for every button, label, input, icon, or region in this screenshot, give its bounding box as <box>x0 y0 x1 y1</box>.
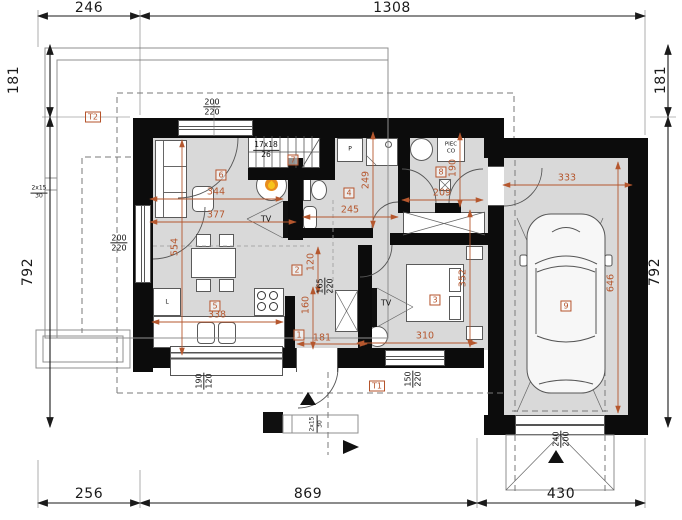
entrance-arrow <box>300 392 316 405</box>
dim-top-1308: 1308 <box>373 0 411 16</box>
dim-left-181: 181 <box>6 66 22 94</box>
front-window-size: 150220 <box>403 370 422 387</box>
dim-bottom-256: 256 <box>75 486 103 502</box>
balcony-door-size: 200220 <box>203 97 220 116</box>
dim-right-792: 792 <box>647 258 663 286</box>
dim-bath-245: 245 <box>341 205 359 216</box>
room-box-entry: 1 <box>293 323 304 342</box>
dim-entry-160: 160 <box>301 296 312 314</box>
dim-bottom-430: 430 <box>547 486 575 502</box>
section-marker-icon <box>343 440 359 454</box>
dim-garage-646: 646 <box>606 274 617 292</box>
dim-top-246: 246 <box>75 0 103 16</box>
room-box-garage: 9 <box>560 294 571 313</box>
room-box-terrace: T2 <box>85 105 101 124</box>
kitchen-window-size: 190120 <box>194 372 213 389</box>
room-box-living: 6 <box>215 163 226 182</box>
dim-living-344: 344 <box>207 187 225 198</box>
dim-hall-120: 120 <box>306 253 317 271</box>
room-box-boiler: 8 <box>435 160 446 179</box>
garage-door-size: 240200 <box>551 430 570 447</box>
dim-living-377: 377 <box>207 210 225 221</box>
dim-bottom-869: 869 <box>294 486 322 502</box>
dim-right-181: 181 <box>653 66 669 94</box>
dim-kitchen-338: 338 <box>208 310 226 321</box>
floor-plan: 246 1308 181 792 181 792 256 869 430 200… <box>0 0 682 520</box>
dim-entry-181: 181 <box>313 333 331 344</box>
room-box-stairs: 7 <box>287 148 298 167</box>
dim-bedroom-352: 352 <box>458 269 469 287</box>
dim-bath-249: 249 <box>361 171 372 189</box>
dim-bedroom-310: 310 <box>416 331 434 342</box>
stairs-spec: 17x1826 <box>253 141 279 159</box>
terrace-door-size: 200220 <box>110 233 127 252</box>
tv-label-bedroom: TV <box>381 299 391 308</box>
boiler-label: PIECCO <box>445 141 457 154</box>
room-box-bedroom: 3 <box>429 288 440 307</box>
dim-garage-333: 333 <box>558 173 576 184</box>
room-box-porch: T1 <box>369 374 385 393</box>
washer-label: P <box>348 146 352 153</box>
dim-boiler-190: 190 <box>448 159 459 177</box>
garage-entrance-arrow <box>548 450 564 463</box>
porch-steps-label: 2x1530 <box>310 415 325 432</box>
room-box-bath: 4 <box>343 181 354 200</box>
room-box-hall: 2 <box>291 258 302 277</box>
dim-living-554: 554 <box>170 238 181 256</box>
fridge-label: L <box>165 299 168 306</box>
door-swing-arcs <box>153 138 542 408</box>
dim-left-792: 792 <box>20 258 36 286</box>
dim-boiler-209: 209 <box>433 188 451 199</box>
tv-label-living: TV <box>261 215 271 224</box>
terrace-steps-label: 2x1530 <box>30 186 47 201</box>
plan-geometry <box>0 0 682 520</box>
entry-door-size: 165220 <box>315 277 334 294</box>
